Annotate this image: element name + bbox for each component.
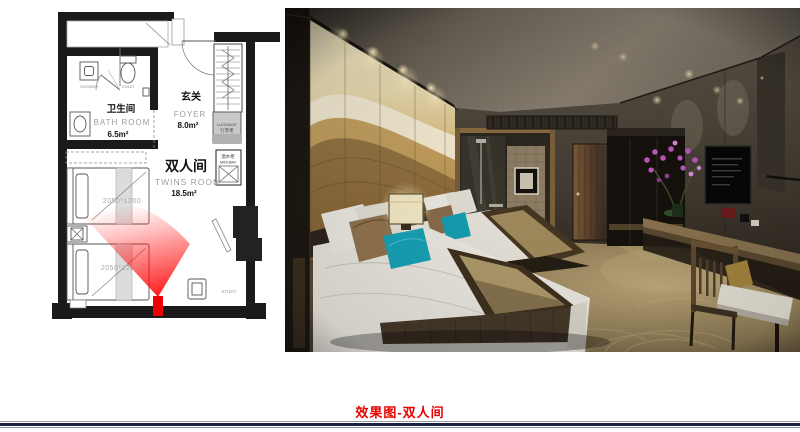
rendering-photo [285,8,800,352]
luggage-label-en: LUGGAGE [217,122,237,127]
foyer-area: 8.0m² [178,121,199,130]
luggage-cabinet: LUGGAGE 行李柜 [213,112,241,143]
floor-plan: LUGGAGE 行李柜 酒水柜 MINI BAR [0,0,300,345]
bathroom-label-en: BATH ROOM [94,118,151,127]
camera-symbol [153,296,163,316]
nightstand-symbol [67,226,87,242]
entry-corridor [67,19,184,47]
tv-cabinet-symbol [233,206,262,261]
foyer-label-cn: 玄关 [181,90,201,103]
minibar-label-cn: 酒水柜 [221,153,235,160]
divider-rule [0,423,800,426]
toilet-label: TOILET [121,84,135,89]
angled-door-leaf [212,219,231,252]
twin-room-area: 18.5m² [171,189,197,198]
minibar-label-en: MINI BAR [220,161,236,165]
study-chair-symbol [188,279,206,299]
bathroom-area: 6.5m² [108,130,129,139]
toilet-tank [120,56,136,63]
closet-symbol [214,44,242,112]
luggage-label-cn: 行李柜 [220,127,234,134]
bench-symbol [70,300,86,308]
page: LUGGAGE 行李柜 酒水柜 MINI BAR [0,0,800,432]
foyer-label-en: FOYER [174,110,207,119]
twin-room-label-en: TWINS ROOM [155,177,221,187]
study-label: STUDY [221,289,236,294]
bed2-size-label: 2050*1200 [101,265,139,272]
vignette [285,8,800,352]
divider-rule-thin [0,421,800,422]
bathroom-label-cn: 卫生间 [107,103,136,115]
entry-door-swing [182,41,216,75]
divider-rule-shadow [0,427,800,428]
twin-room-label-cn: 双人间 [165,158,207,174]
shower-label: SHOWER [80,84,98,89]
bed1-size-label: 2050*1200 [103,198,141,205]
caption-title: 效果图-双人间 [0,402,800,421]
toilet-symbol [121,63,135,83]
